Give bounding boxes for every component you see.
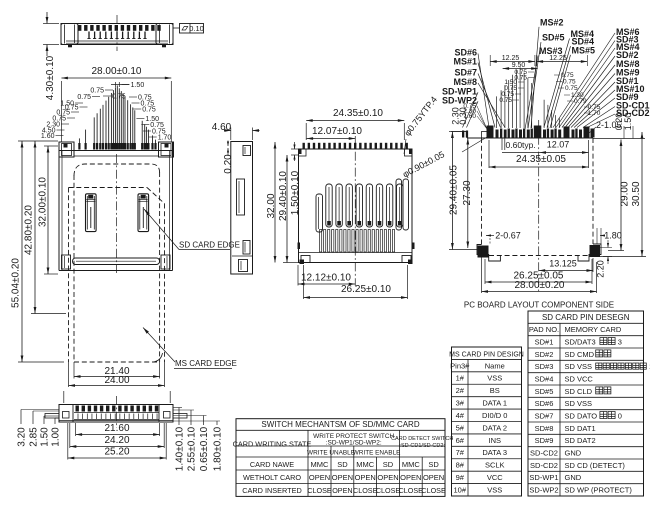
svg-text:4.60: 4.60 <box>212 122 232 133</box>
svg-text:29.40±0.05: 29.40±0.05 <box>449 165 460 215</box>
svg-text:29.40±0.10: 29.40±0.10 <box>278 171 289 221</box>
svg-text:0.75: 0.75 <box>499 97 512 104</box>
svg-text:0.60typ.: 0.60typ. <box>506 140 536 150</box>
svg-text:24.00: 24.00 <box>104 375 129 386</box>
svg-text:Name: Name <box>485 361 505 370</box>
svg-text:SD#5: SD#5 <box>535 387 554 396</box>
svg-text:2-0.67: 2-0.67 <box>495 231 521 241</box>
svg-text:0.20: 0.20 <box>223 154 234 174</box>
svg-text:SD-WP2: SD-WP2 <box>529 486 558 495</box>
svg-text:0.10: 0.10 <box>189 24 204 33</box>
svg-text:SD: SD <box>428 460 439 469</box>
svg-text:0.79: 0.79 <box>574 98 587 105</box>
svg-text:MS#1: MS#1 <box>453 57 477 67</box>
svg-text:12.25: 12.25 <box>549 55 567 62</box>
svg-text:MMC: MMC <box>311 460 329 469</box>
svg-text:SWITCH MECHANTSM OF SD/MMC CAR: SWITCH MECHANTSM OF SD/MMC CARD <box>261 420 419 429</box>
svg-text:CLOSE: CLOSE <box>399 486 424 495</box>
svg-text:SD#7: SD#7 <box>535 412 554 421</box>
svg-text:DATA 1: DATA 1 <box>482 399 507 408</box>
svg-text:VCC: VCC <box>487 473 503 482</box>
svg-text:1.40±0.10: 1.40±0.10 <box>175 426 186 471</box>
svg-text:SD WP (PROTECT): SD WP (PROTECT) <box>565 486 633 495</box>
svg-text:1.70: 1.70 <box>588 110 601 117</box>
svg-text:CLOSE: CLOSE <box>376 486 401 495</box>
svg-text:MMC: MMC <box>402 460 420 469</box>
svg-text:0.75: 0.75 <box>77 94 91 101</box>
svg-text:1#: 1# <box>456 374 465 383</box>
svg-text:PAD NO.: PAD NO. <box>529 325 559 334</box>
svg-text:WRITE ENABLE: WRITE ENABLE <box>353 450 401 457</box>
svg-text:CLOSE: CLOSE <box>307 486 332 495</box>
svg-text:SD#5: SD#5 <box>542 33 565 43</box>
svg-text:MS#2: MS#2 <box>540 17 564 27</box>
svg-text:GND: GND <box>565 449 582 458</box>
svg-text:24.20: 24.20 <box>104 435 129 446</box>
svg-text:2.20: 2.20 <box>596 260 606 278</box>
svg-text:12.07: 12.07 <box>547 140 570 150</box>
svg-text:SD DAT2: SD DAT2 <box>565 436 596 445</box>
svg-text:5#: 5# <box>456 423 465 432</box>
svg-text:SD CLD: SD CLD <box>565 387 593 396</box>
svg-text:CARD DETECT SWITCH: CARD DETECT SWITCH <box>391 436 453 442</box>
svg-text:SCLK: SCLK <box>485 461 505 470</box>
svg-text:SD DAT1: SD DAT1 <box>565 424 596 433</box>
svg-text:CARD NAWE: CARD NAWE <box>250 460 294 469</box>
svg-text:0.75: 0.75 <box>565 85 578 92</box>
svg-text:MS#5: MS#5 <box>572 45 596 55</box>
svg-text:MS CARD EDGE: MS CARD EDGE <box>175 359 237 368</box>
svg-text:12.07±0.10: 12.07±0.10 <box>312 126 362 137</box>
svg-text:SD#9: SD#9 <box>535 436 554 445</box>
svg-text:24.35±0.05: 24.35±0.05 <box>516 154 566 165</box>
svg-text:DI0/D 0: DI0/D 0 <box>482 411 507 420</box>
svg-text:VSS: VSS <box>487 485 502 494</box>
svg-text:2.85: 2.85 <box>29 427 40 447</box>
svg-text:SD#3: SD#3 <box>535 362 554 371</box>
svg-text:CLOSE: CLOSE <box>353 486 378 495</box>
svg-text:8#: 8# <box>456 461 465 470</box>
svg-text:DATA 3: DATA 3 <box>482 448 507 457</box>
svg-text:12.25: 12.25 <box>502 55 520 62</box>
svg-text:1.00: 1.00 <box>51 427 62 447</box>
svg-text:MEMORY CARD: MEMORY CARD <box>565 325 622 334</box>
svg-text:25.20: 25.20 <box>104 447 129 458</box>
svg-text:3.20: 3.20 <box>17 427 28 447</box>
svg-text:OPEN: OPEN <box>423 473 444 482</box>
svg-text:SD VSS: SD VSS <box>565 399 593 408</box>
svg-text:OPEN: OPEN <box>400 473 421 482</box>
svg-text:7#: 7# <box>456 448 465 457</box>
svg-text:32.00: 32.00 <box>266 193 277 218</box>
svg-text:CARD WRITING STATE: CARD WRITING STATE <box>233 440 312 449</box>
svg-text:0.65±0.10: 0.65±0.10 <box>199 426 210 471</box>
svg-text:OPEN: OPEN <box>332 486 352 495</box>
svg-text:MMC: MMC <box>356 460 374 469</box>
svg-text:WRITE UNABLE: WRITE UNABLE <box>307 450 355 457</box>
svg-text:1.50: 1.50 <box>623 113 633 131</box>
svg-text:INS: INS <box>488 436 501 445</box>
svg-text:28.00±0.10: 28.00±0.10 <box>92 66 142 77</box>
svg-text:SD#4: SD#4 <box>535 375 554 384</box>
svg-text:0: 0 <box>618 412 622 421</box>
svg-text:55.04±0.20: 55.04±0.20 <box>11 258 22 308</box>
svg-text:OPEN: OPEN <box>309 473 330 482</box>
svg-text:SD#7: SD#7 <box>454 68 477 78</box>
svg-text:42.80±0.20: 42.80±0.20 <box>24 205 35 255</box>
svg-text:PC BOARD LAYOUT COMPONENT SIDE: PC BOARD LAYOUT COMPONENT SIDE <box>464 301 614 310</box>
svg-text:BS: BS <box>490 386 500 395</box>
svg-text:13.125: 13.125 <box>549 259 577 269</box>
svg-text:SD CARD PIN DESEGN: SD CARD PIN DESEGN <box>542 313 630 322</box>
svg-text:9#: 9# <box>456 473 465 482</box>
svg-text:24.35±0.10: 24.35±0.10 <box>333 108 383 119</box>
svg-text:Pin3#: Pin3# <box>450 361 470 370</box>
svg-text:3#: 3# <box>456 399 465 408</box>
svg-text:9.50: 9.50 <box>512 62 526 69</box>
svg-text:CLOSE: CLOSE <box>421 486 446 495</box>
svg-text:SD VSS: SD VSS <box>565 362 593 371</box>
svg-text:0.75: 0.75 <box>90 88 104 95</box>
svg-text:10#: 10# <box>453 485 466 494</box>
svg-text:21.60: 21.60 <box>104 423 129 434</box>
svg-text:6#: 6# <box>456 436 465 445</box>
svg-text:SD: SD <box>337 460 348 469</box>
svg-text:27.30: 27.30 <box>462 180 473 205</box>
svg-text::SD-CD1/SD-CD2:: :SD-CD1/SD-CD2: <box>399 443 445 449</box>
svg-text:1.60: 1.60 <box>463 113 476 120</box>
svg-text:SD#6: SD#6 <box>535 399 554 408</box>
svg-text:SD VCC: SD VCC <box>565 375 594 384</box>
svg-text:OPEN: OPEN <box>332 473 353 482</box>
svg-text:SD DATO: SD DATO <box>565 412 598 421</box>
svg-text:SD#8: SD#8 <box>535 424 554 433</box>
svg-text:OPEN: OPEN <box>355 473 376 482</box>
svg-text:29.00: 29.00 <box>620 181 631 206</box>
svg-text:SD CMD: SD CMD <box>565 350 595 359</box>
svg-text:MS CARD PIN DESIGN: MS CARD PIN DESIGN <box>449 352 524 359</box>
svg-text:DATA 2: DATA 2 <box>482 423 507 432</box>
svg-text:SD-WP1: SD-WP1 <box>529 473 558 482</box>
svg-text:3: 3 <box>618 338 622 347</box>
svg-text:4.30±0.10: 4.30±0.10 <box>45 55 56 100</box>
svg-text:SD CD (DETECT): SD CD (DETECT) <box>565 461 626 470</box>
svg-text:28.00±0.20: 28.00±0.20 <box>515 280 565 291</box>
svg-text:30.50: 30.50 <box>631 181 642 206</box>
svg-text:1.50±0.10: 1.50±0.10 <box>290 170 301 215</box>
svg-text:VSS: VSS <box>487 374 502 383</box>
svg-text:WETHOLT CARO: WETHOLT CARO <box>243 473 301 482</box>
svg-text:0.75: 0.75 <box>112 94 126 101</box>
svg-text::SD-WP1/SD-WP2:: :SD-WP1/SD-WP2: <box>326 440 382 447</box>
svg-text:OPEN: OPEN <box>377 473 398 482</box>
svg-text:SD: SD <box>383 460 394 469</box>
svg-text:SD/DAT3: SD/DAT3 <box>565 338 596 347</box>
svg-text:1.80: 1.80 <box>604 231 622 241</box>
svg-text:2#: 2# <box>456 386 465 395</box>
svg-text:SD-CD2: SD-CD2 <box>530 461 558 470</box>
svg-text:32.00±0.10: 32.00±0.10 <box>38 177 49 227</box>
svg-text:1.80±0.10: 1.80±0.10 <box>213 426 224 471</box>
svg-text:12.12±0.10: 12.12±0.10 <box>301 273 351 284</box>
svg-text:GND: GND <box>565 473 582 482</box>
svg-text:4#: 4# <box>456 411 465 420</box>
svg-text:SD#1: SD#1 <box>535 338 554 347</box>
svg-text:SD#2: SD#2 <box>535 350 554 359</box>
svg-text:1.60: 1.60 <box>41 133 55 140</box>
svg-text:1.50: 1.50 <box>131 82 145 89</box>
svg-text:1.70: 1.70 <box>158 135 172 142</box>
svg-text:CARD INSERTED: CARD INSERTED <box>242 486 301 495</box>
svg-text:0.75: 0.75 <box>142 107 156 114</box>
svg-text:26.25±0.10: 26.25±0.10 <box>341 284 391 295</box>
svg-text:1.50: 1.50 <box>40 427 51 447</box>
svg-text:2.55±0.10: 2.55±0.10 <box>187 426 198 471</box>
svg-text:SD-CD2: SD-CD2 <box>530 449 558 458</box>
